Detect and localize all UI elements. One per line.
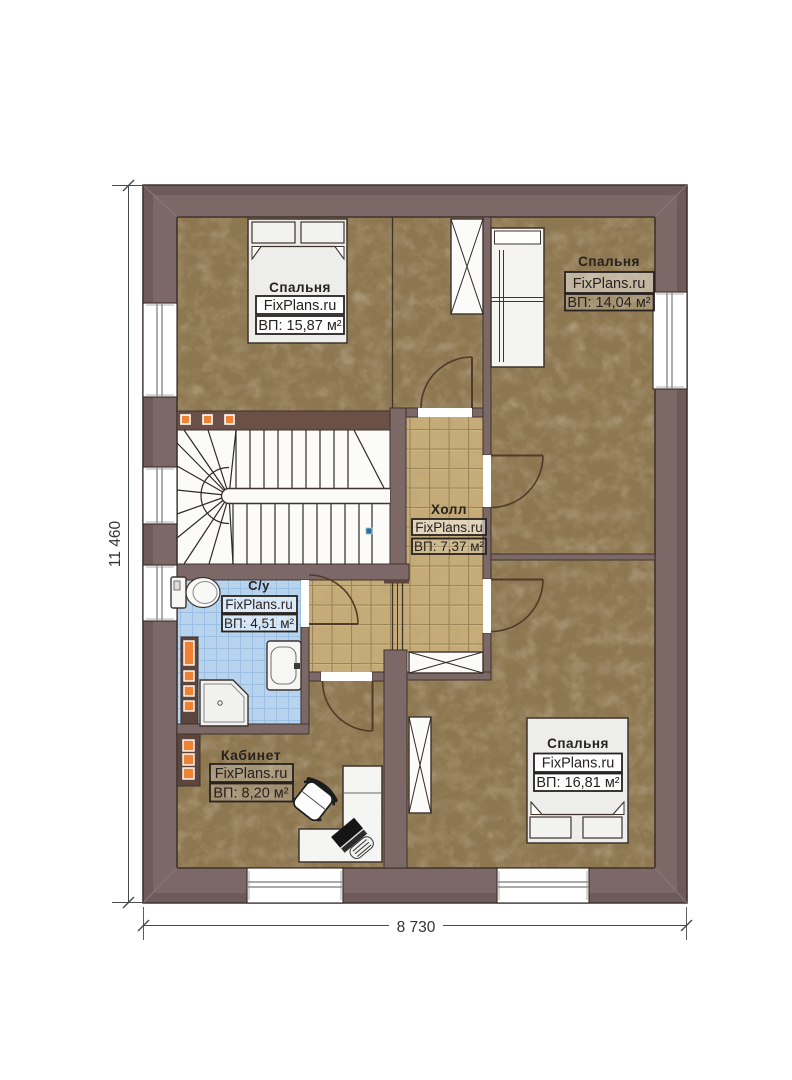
svg-text:С/у: С/у: [248, 578, 270, 593]
svg-text:FixPlans.ru: FixPlans.ru: [415, 520, 483, 535]
svg-text:FixPlans.ru: FixPlans.ru: [573, 276, 646, 292]
svg-text:FixPlans.ru: FixPlans.ru: [264, 298, 337, 314]
svg-text:FixPlans.ru: FixPlans.ru: [542, 756, 615, 772]
svg-text:ВП: 16,81 м²: ВП: 16,81 м²: [536, 775, 619, 791]
svg-text:Спальня: Спальня: [578, 254, 640, 269]
svg-text:ВП: 14,04 м²: ВП: 14,04 м²: [567, 295, 650, 311]
svg-text:11 460: 11 460: [107, 520, 124, 567]
svg-text:ВП: 8,20 м²: ВП: 8,20 м²: [213, 786, 288, 802]
svg-text:FixPlans.ru: FixPlans.ru: [225, 597, 293, 612]
svg-text:ВП: 15,87 м²: ВП: 15,87 м²: [258, 318, 341, 334]
svg-text:Спальня: Спальня: [269, 280, 331, 295]
svg-text:ВП: 4,51 м²: ВП: 4,51 м²: [224, 616, 295, 631]
svg-text:FixPlans.ru: FixPlans.ru: [215, 766, 288, 782]
svg-text:Кабинет: Кабинет: [221, 747, 281, 763]
svg-text:8 730: 8 730: [397, 919, 436, 936]
svg-text:ВП: 7,37 м²: ВП: 7,37 м²: [414, 539, 485, 554]
svg-text:Спальня: Спальня: [547, 736, 609, 751]
svg-text:Холл: Холл: [431, 502, 467, 517]
